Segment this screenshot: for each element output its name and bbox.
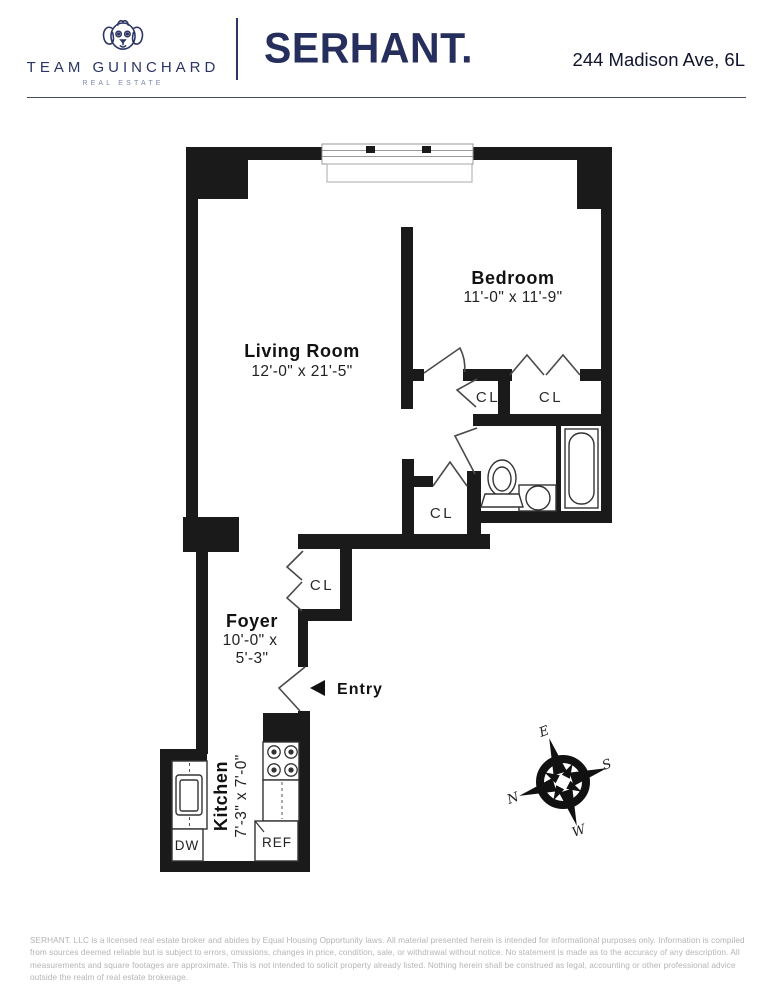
doors — [279, 348, 580, 711]
bedroom-dims: 11'-0" x 11'-9" — [463, 289, 562, 306]
dog-logo-icon — [97, 11, 149, 57]
dishwasher-label: DW — [175, 838, 200, 853]
sink-icon — [526, 486, 550, 510]
kitchen-dims: 7'-3" x 7'-0" — [233, 754, 250, 837]
bathroom-fixtures — [481, 429, 598, 511]
brand-logo: SERHANT. — [264, 24, 473, 73]
listing-address: 244 Madison Ave, 6L — [573, 49, 745, 71]
closet-label-bath-hall: CL — [430, 505, 454, 522]
bathroom-door — [455, 428, 477, 474]
compass-e: E — [536, 723, 551, 741]
bedroom-door — [424, 348, 465, 373]
compass-rose: E S N W — [504, 723, 620, 841]
bedroom-label: Bedroom — [471, 268, 554, 288]
floorplan-drawing: Living Room 12'-0" x 21'-5" Bedroom 11'-… — [0, 98, 773, 934]
toilet-tank — [481, 494, 523, 507]
living-room-dims: 12'-0" x 21'-5" — [251, 363, 352, 380]
closet-label-foyer: CL — [310, 577, 334, 594]
header: TEAM GUINCHARD REAL ESTATE SERHANT. 244 … — [0, 0, 773, 97]
foyer-label: Foyer — [226, 611, 278, 631]
team-guinchard-logo: TEAM GUINCHARD REAL ESTATE — [34, 11, 212, 87]
bedroom-closet-bifold-2 — [546, 355, 580, 375]
kitchen-counter-right — [263, 780, 299, 821]
header-divider — [236, 18, 238, 80]
foyer-closet-door-2 — [287, 582, 302, 611]
legal-disclaimer: SERHANT. LLC is a licensed real estate b… — [30, 935, 747, 984]
foyer-closet-door — [287, 551, 303, 580]
compass-n: N — [504, 790, 521, 809]
window — [322, 144, 473, 182]
bedroom-closet-bifold — [510, 355, 544, 375]
room-labels: Living Room 12'-0" x 21'-5" Bedroom 11'-… — [175, 268, 563, 853]
entry-arrow-icon — [310, 680, 325, 696]
kitchen-label: Kitchen — [211, 761, 231, 831]
hall-closet-door — [457, 379, 477, 407]
closet-label-hall: CL — [476, 389, 500, 406]
living-room-label: Living Room — [244, 341, 360, 361]
entry-label: Entry — [337, 681, 383, 698]
hallway-closet-bifold — [433, 462, 467, 486]
compass-w: W — [570, 822, 589, 841]
stove-icon — [263, 742, 299, 780]
closet-label-bedroom: CL — [539, 389, 563, 406]
floorplan-sheet: TEAM GUINCHARD REAL ESTATE SERHANT. 244 … — [0, 0, 773, 1000]
kitchen-sink-inner — [180, 780, 198, 811]
footer: SERHANT. LLC is a licensed real estate b… — [0, 934, 773, 984]
refrigerator-label: REF — [262, 835, 292, 850]
entry-door — [279, 667, 305, 711]
team-name: TEAM GUINCHARD — [27, 59, 220, 76]
team-subtitle: REAL ESTATE — [82, 80, 163, 87]
foyer-dims-2: 5'-3" — [236, 650, 269, 667]
bathtub-inner — [569, 433, 594, 504]
compass-s: S — [600, 757, 614, 774]
toilet-bowl-inner — [493, 467, 511, 491]
foyer-dims-1: 10'-0" x — [223, 632, 278, 649]
